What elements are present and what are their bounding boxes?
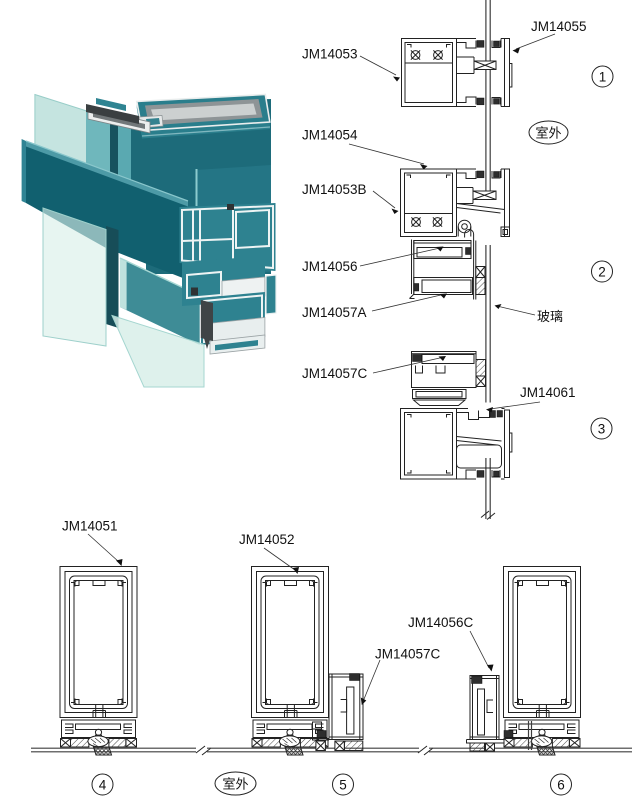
svg-text:JM14051: JM14051: [62, 519, 118, 534]
svg-text:6: 6: [557, 778, 565, 793]
svg-text:室外: 室外: [535, 126, 561, 141]
svg-text:3: 3: [598, 422, 606, 437]
svg-text:JM14052: JM14052: [239, 532, 295, 547]
svg-text:1: 1: [599, 70, 607, 85]
svg-text:JM14057A: JM14057A: [302, 305, 367, 320]
svg-text:室外: 室外: [222, 777, 248, 792]
svg-text:JM14055: JM14055: [531, 19, 587, 34]
svg-text:玻璃: 玻璃: [537, 309, 563, 324]
svg-text:JM14053: JM14053: [302, 47, 358, 62]
svg-text:JM14057C: JM14057C: [302, 366, 368, 381]
svg-text:JM14054: JM14054: [302, 128, 358, 143]
svg-text:JM14061: JM14061: [520, 385, 576, 400]
svg-text:JM14056: JM14056: [302, 259, 358, 274]
svg-text:5: 5: [339, 778, 347, 793]
svg-text:JM14056C: JM14056C: [408, 615, 474, 630]
svg-text:JM14057C: JM14057C: [375, 647, 441, 662]
svg-text:2: 2: [598, 265, 606, 280]
svg-text:JM14053B: JM14053B: [302, 182, 367, 197]
svg-text:4: 4: [99, 778, 107, 793]
